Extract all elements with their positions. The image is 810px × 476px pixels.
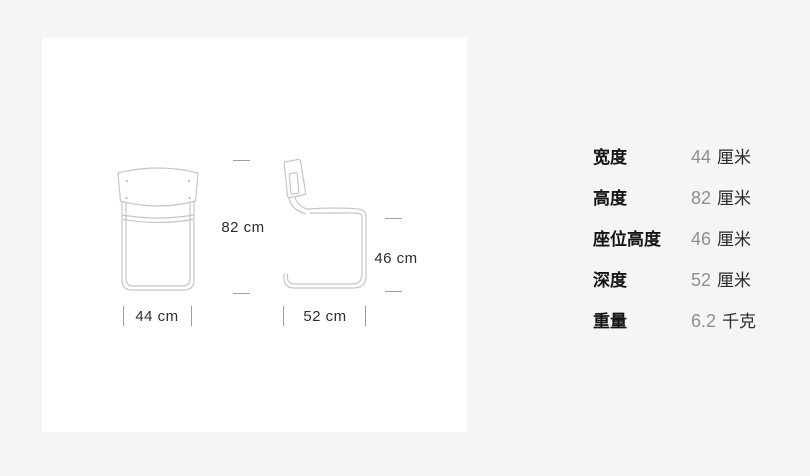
chair-front-view-drawing <box>112 156 204 302</box>
height-dimension-label: 82 cm <box>221 219 264 236</box>
spec-value: 46 <box>691 227 711 251</box>
width-dimension-right-tick <box>191 306 192 326</box>
spec-unit: 厘米 <box>717 269 751 293</box>
height-dimension-bottom-tick <box>233 293 250 294</box>
chair-side-view-drawing <box>275 156 372 298</box>
spec-label: 座位高度 <box>593 228 691 252</box>
spec-value: 52 <box>691 268 711 292</box>
spec-value: 6.2 <box>691 309 716 333</box>
spec-row-height: 高度 82 厘米 <box>593 186 756 211</box>
spec-label: 高度 <box>593 187 691 211</box>
seat-height-dimension-label: 46 cm <box>374 250 417 267</box>
height-dimension-top-tick <box>233 160 250 161</box>
seat-height-dimension-top-tick <box>385 218 402 219</box>
spec-label: 宽度 <box>593 146 691 170</box>
spec-label: 深度 <box>593 269 691 293</box>
dimension-diagram-card: 82 cm 46 cm 44 cm 52 cm <box>42 38 467 432</box>
spec-row-weight: 重量 6.2 千克 <box>593 309 756 334</box>
spec-row-depth: 深度 52 厘米 <box>593 268 756 293</box>
spec-value: 44 <box>691 145 711 169</box>
width-dimension-left-tick <box>123 306 124 326</box>
width-dimension-label: 44 cm <box>135 308 178 325</box>
spec-value: 82 <box>691 186 711 210</box>
spec-row-width: 宽度 44 厘米 <box>593 145 756 170</box>
product-dimensions-page: 82 cm 46 cm 44 cm 52 cm 宽度 44 厘米 高度 82 厘… <box>0 0 810 476</box>
depth-dimension-label: 52 cm <box>303 308 346 325</box>
seat-height-dimension-bottom-tick <box>385 291 402 292</box>
depth-dimension-left-tick <box>283 306 284 326</box>
spec-label: 重量 <box>593 310 691 334</box>
depth-dimension-right-tick <box>365 306 366 326</box>
spec-unit: 厘米 <box>717 187 751 211</box>
spec-list: 宽度 44 厘米 高度 82 厘米 座位高度 46 厘米 深度 52 厘米 重量… <box>593 145 756 334</box>
spec-unit: 厘米 <box>717 146 751 170</box>
spec-unit: 千克 <box>722 310 756 334</box>
spec-unit: 厘米 <box>717 228 751 252</box>
spec-row-seat-height: 座位高度 46 厘米 <box>593 227 756 252</box>
